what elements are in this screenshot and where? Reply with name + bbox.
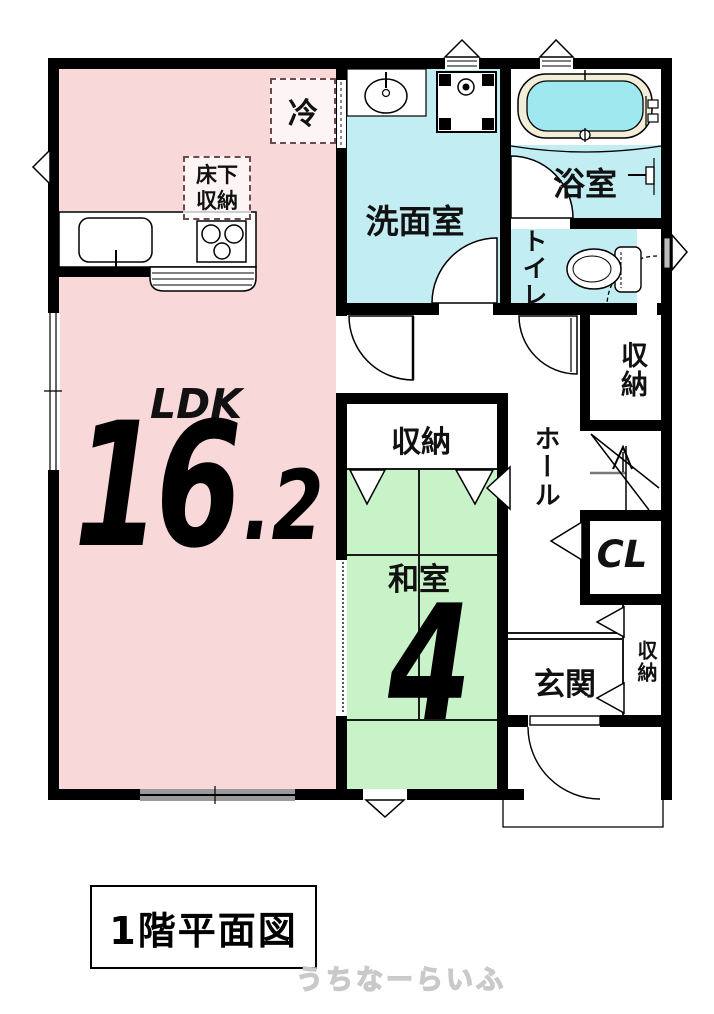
fridge-space-box: 冷	[270, 78, 336, 144]
porch-outline	[503, 800, 663, 827]
washitsu-closet-label: 収納	[391, 417, 451, 461]
bathtub	[511, 69, 661, 152]
plan-title: 1階平面図	[109, 900, 297, 955]
vent-left-wall	[33, 150, 50, 184]
toilet-door-gap	[637, 303, 657, 315]
window-top-bath	[540, 40, 573, 70]
fridge-label: 冷	[288, 89, 318, 133]
ldk-size-dec: .2	[243, 458, 324, 554]
shower-fixture	[628, 158, 654, 195]
washing-machine-pan	[437, 72, 496, 132]
floor-plan-canvas: 冷 床下収納 LDK 16 .2 洗面室 浴室 トイレ 収納 ホール CL 収納…	[0, 0, 714, 1014]
underfloor-storage-label: 床下収納	[194, 162, 240, 214]
closet-upper-label: 収納	[612, 341, 651, 399]
hall-toilet-door	[519, 316, 577, 374]
cl-label: CL	[597, 533, 648, 576]
genkan-closet-door-markers	[597, 607, 624, 713]
window-bottom-ldk	[140, 786, 295, 804]
plan-title-box: 1階平面図	[90, 885, 317, 969]
bath-label: 浴室	[553, 159, 617, 205]
hall-label: ホール	[527, 425, 564, 509]
ldk-hall-door	[349, 316, 413, 380]
washitsu-size: 4	[388, 584, 471, 744]
watermark-text: うちなーらいふ	[296, 958, 506, 997]
underfloor-storage-box: 床下収納	[183, 156, 251, 220]
window-bottom-washitsu	[363, 789, 407, 817]
toilet-label: トイレ	[515, 228, 551, 309]
toilet-fixture	[567, 247, 641, 292]
genkan-label: 玄関	[534, 659, 596, 704]
cl-door-marker	[551, 522, 582, 560]
ldk-size-int: 16	[74, 400, 238, 572]
genkan-closet-label: 収納	[632, 640, 661, 684]
entry-door	[528, 715, 600, 799]
washroom-label: 洗面室	[366, 195, 465, 243]
kitchen-counter	[59, 212, 256, 291]
washroom-sink	[347, 69, 426, 116]
washroom-door	[432, 238, 497, 303]
washroom-door-gap	[439, 303, 493, 315]
window-right-toilet	[664, 235, 687, 270]
washitsu-closet-doors	[350, 470, 493, 504]
kitchen-wall-vent	[337, 80, 346, 148]
window-left-ldk	[44, 313, 62, 470]
window-top-washroom	[445, 40, 479, 70]
stairs	[590, 434, 659, 510]
